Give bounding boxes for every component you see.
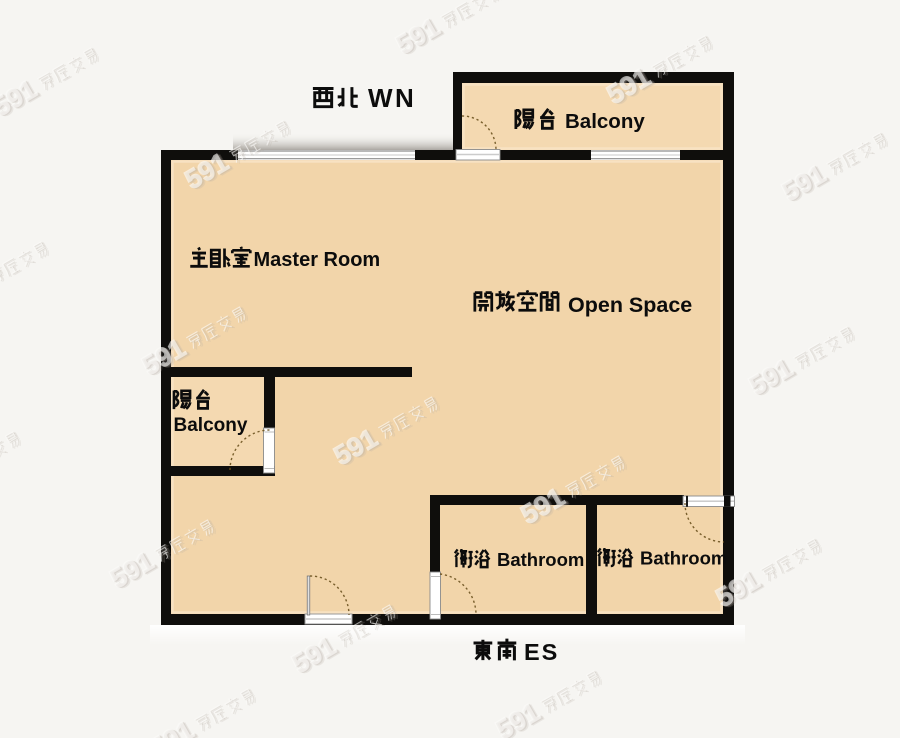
svg-text:Bathroom: Bathroom [640, 548, 727, 569]
svg-text:Master Room: Master Room [254, 249, 381, 271]
svg-text:Balcony: Balcony [565, 110, 645, 133]
svg-text:WN: WN [368, 83, 416, 113]
svg-text:Balcony: Balcony [174, 415, 248, 436]
svg-text:Open Space: Open Space [568, 293, 692, 317]
svg-text:ES: ES [524, 639, 559, 665]
svg-text:Bathroom: Bathroom [497, 549, 584, 570]
